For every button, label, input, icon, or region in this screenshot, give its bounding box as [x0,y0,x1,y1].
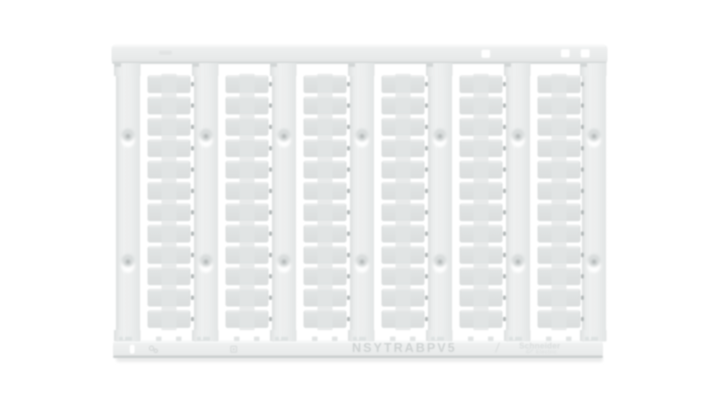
svg-text:NSYTRABPV5: NSYTRABPV5 [352,341,457,355]
svg-text:Electric: Electric [536,350,557,356]
